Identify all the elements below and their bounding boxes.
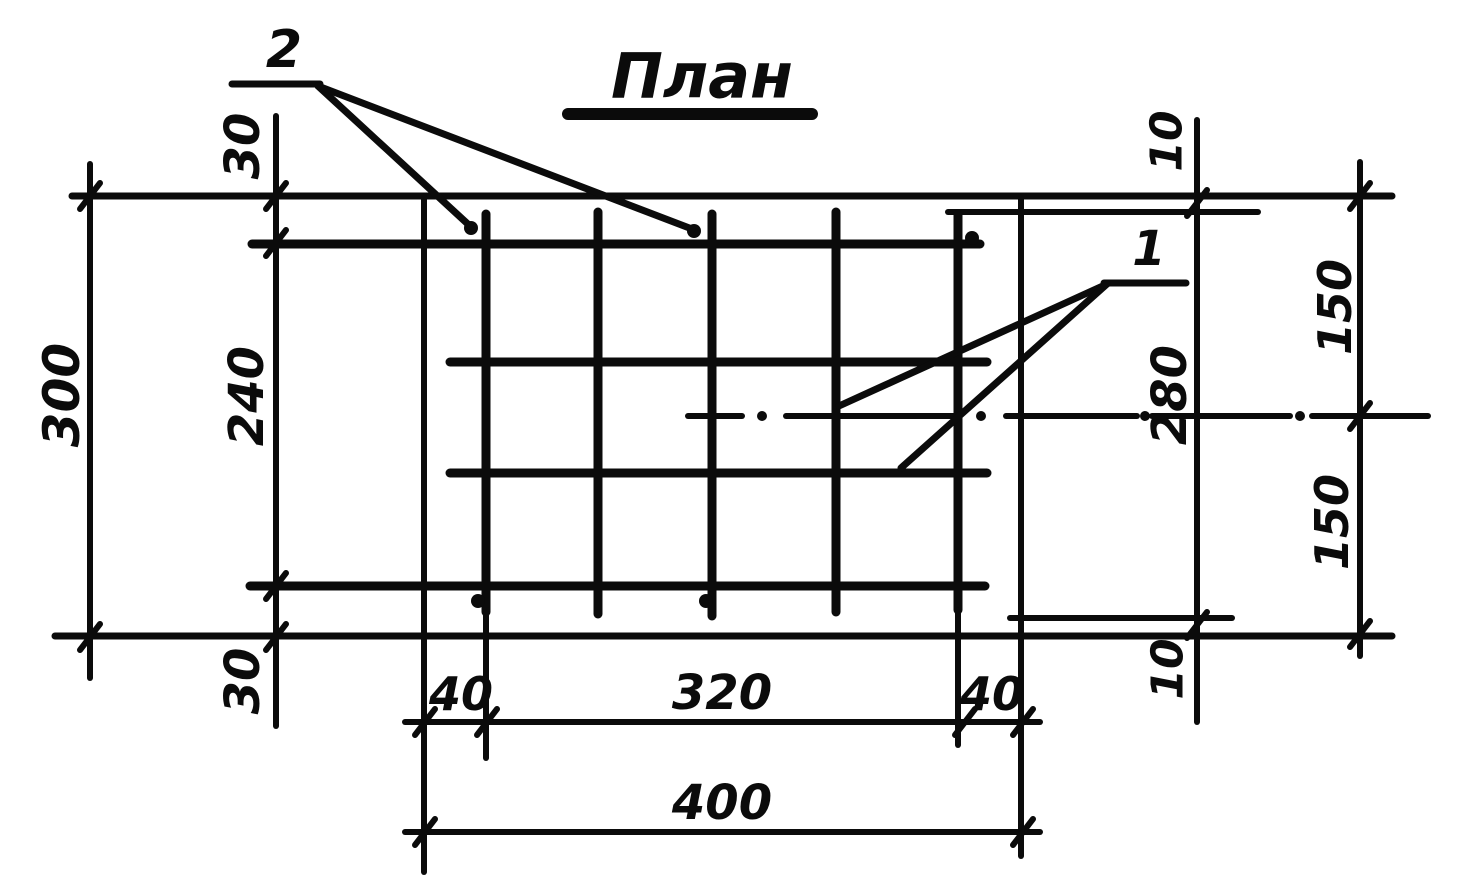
- plan-drawing: План21300240303010280101501504032040400: [0, 0, 1457, 879]
- dim-label-40-left: 40: [428, 667, 493, 721]
- dim-label-150-top: 150: [1308, 259, 1362, 355]
- blueprint-sheet: План21300240303010280101501504032040400: [0, 0, 1457, 879]
- slab-center-line-dot: [757, 411, 767, 421]
- callout-label-1: 1: [1132, 221, 1165, 277]
- leader-2a: [318, 86, 470, 226]
- text-layer: План21300240303010280101501504032040400: [33, 20, 1362, 831]
- dim-label-240: 240: [219, 346, 275, 446]
- centerline-layer: [688, 411, 1428, 421]
- slab-center-line-dot: [1295, 411, 1305, 421]
- dim-label-300: 300: [33, 343, 91, 447]
- drawing-title: План: [611, 40, 793, 113]
- dim-label-40-right: 40: [959, 667, 1024, 721]
- rebar-end-dot: [965, 231, 979, 245]
- dim-label-400: 400: [671, 775, 772, 831]
- leader-1b: [901, 284, 1107, 468]
- dim-label-320: 320: [672, 665, 772, 721]
- dim-label-280: 280: [1142, 345, 1198, 445]
- dim-label-30-top: 30: [215, 113, 271, 180]
- dim-label-10-bottom: 10: [1143, 638, 1194, 699]
- callout-label-2: 2: [266, 20, 302, 80]
- dim-label-30-bottom: 30: [215, 648, 271, 715]
- dim-label-10-top: 10: [1142, 110, 1193, 171]
- dim-label-150-bottom: 150: [1305, 474, 1359, 570]
- rebar-end-dot: [471, 594, 485, 608]
- leader-1a: [839, 284, 1107, 406]
- slab-center-line-dot: [976, 411, 986, 421]
- line-layer: [55, 84, 1392, 872]
- rebar-end-dot: [699, 594, 713, 608]
